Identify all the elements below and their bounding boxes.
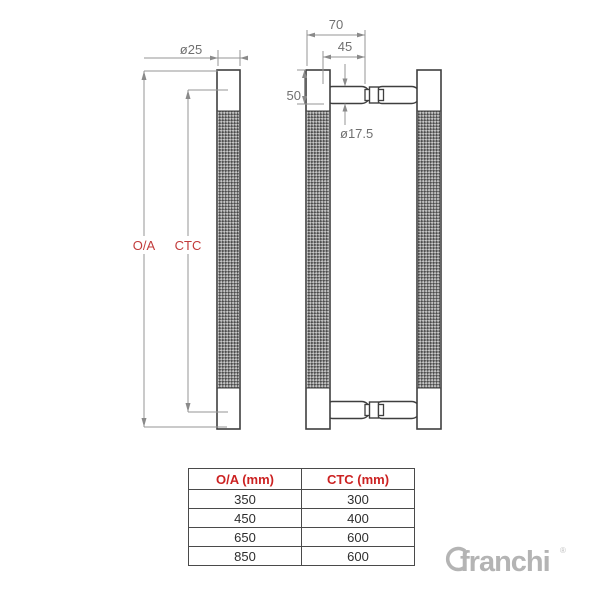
size-table: O/A (mm) CTC (mm) 350 300 450 400 650 60… <box>188 468 415 566</box>
front-view: ø25 O/A CTC <box>128 42 248 429</box>
cell-ctc: 300 <box>302 490 415 509</box>
top-fixing <box>324 87 420 104</box>
cell-oa: 450 <box>189 509 302 528</box>
cell-oa: 850 <box>189 547 302 566</box>
table-row: 650 600 <box>189 528 415 547</box>
cell-ctc: 600 <box>302 547 415 566</box>
dim-label-ctc: CTC <box>175 238 202 253</box>
cell-oa: 350 <box>189 490 302 509</box>
dim-label-diameter-17-5: ø17.5 <box>340 126 373 141</box>
side-view: 70 45 50 ø17.5 <box>287 17 441 429</box>
table-row: 850 600 <box>189 547 415 566</box>
col-header-oa: O/A (mm) <box>189 469 302 490</box>
front-handle-knurl <box>218 111 239 388</box>
franchi-logo-text: franchi <box>460 546 550 578</box>
size-table-header-row: O/A (mm) CTC (mm) <box>189 469 415 490</box>
dim-label-diameter-25: ø25 <box>180 42 202 57</box>
dim-label-45: 45 <box>338 39 352 54</box>
dim-label-50: 50 <box>287 88 301 103</box>
dim-label-oa: O/A <box>133 238 156 253</box>
trademark-mark: ® <box>560 546 566 555</box>
dim-label-70: 70 <box>329 17 343 32</box>
handle-technical-drawing: ø25 O/A CTC <box>0 0 600 465</box>
bottom-fixing <box>324 402 420 419</box>
franchi-logo-graphic: franchi ® <box>442 541 582 583</box>
franchi-logo: franchi ® <box>442 541 582 583</box>
col-header-ctc: CTC (mm) <box>302 469 415 490</box>
cell-ctc: 400 <box>302 509 415 528</box>
dim-diameter-25: ø25 <box>144 42 248 66</box>
table-row: 350 300 <box>189 490 415 509</box>
cell-oa: 650 <box>189 528 302 547</box>
cell-ctc: 600 <box>302 528 415 547</box>
table-row: 450 400 <box>189 509 415 528</box>
